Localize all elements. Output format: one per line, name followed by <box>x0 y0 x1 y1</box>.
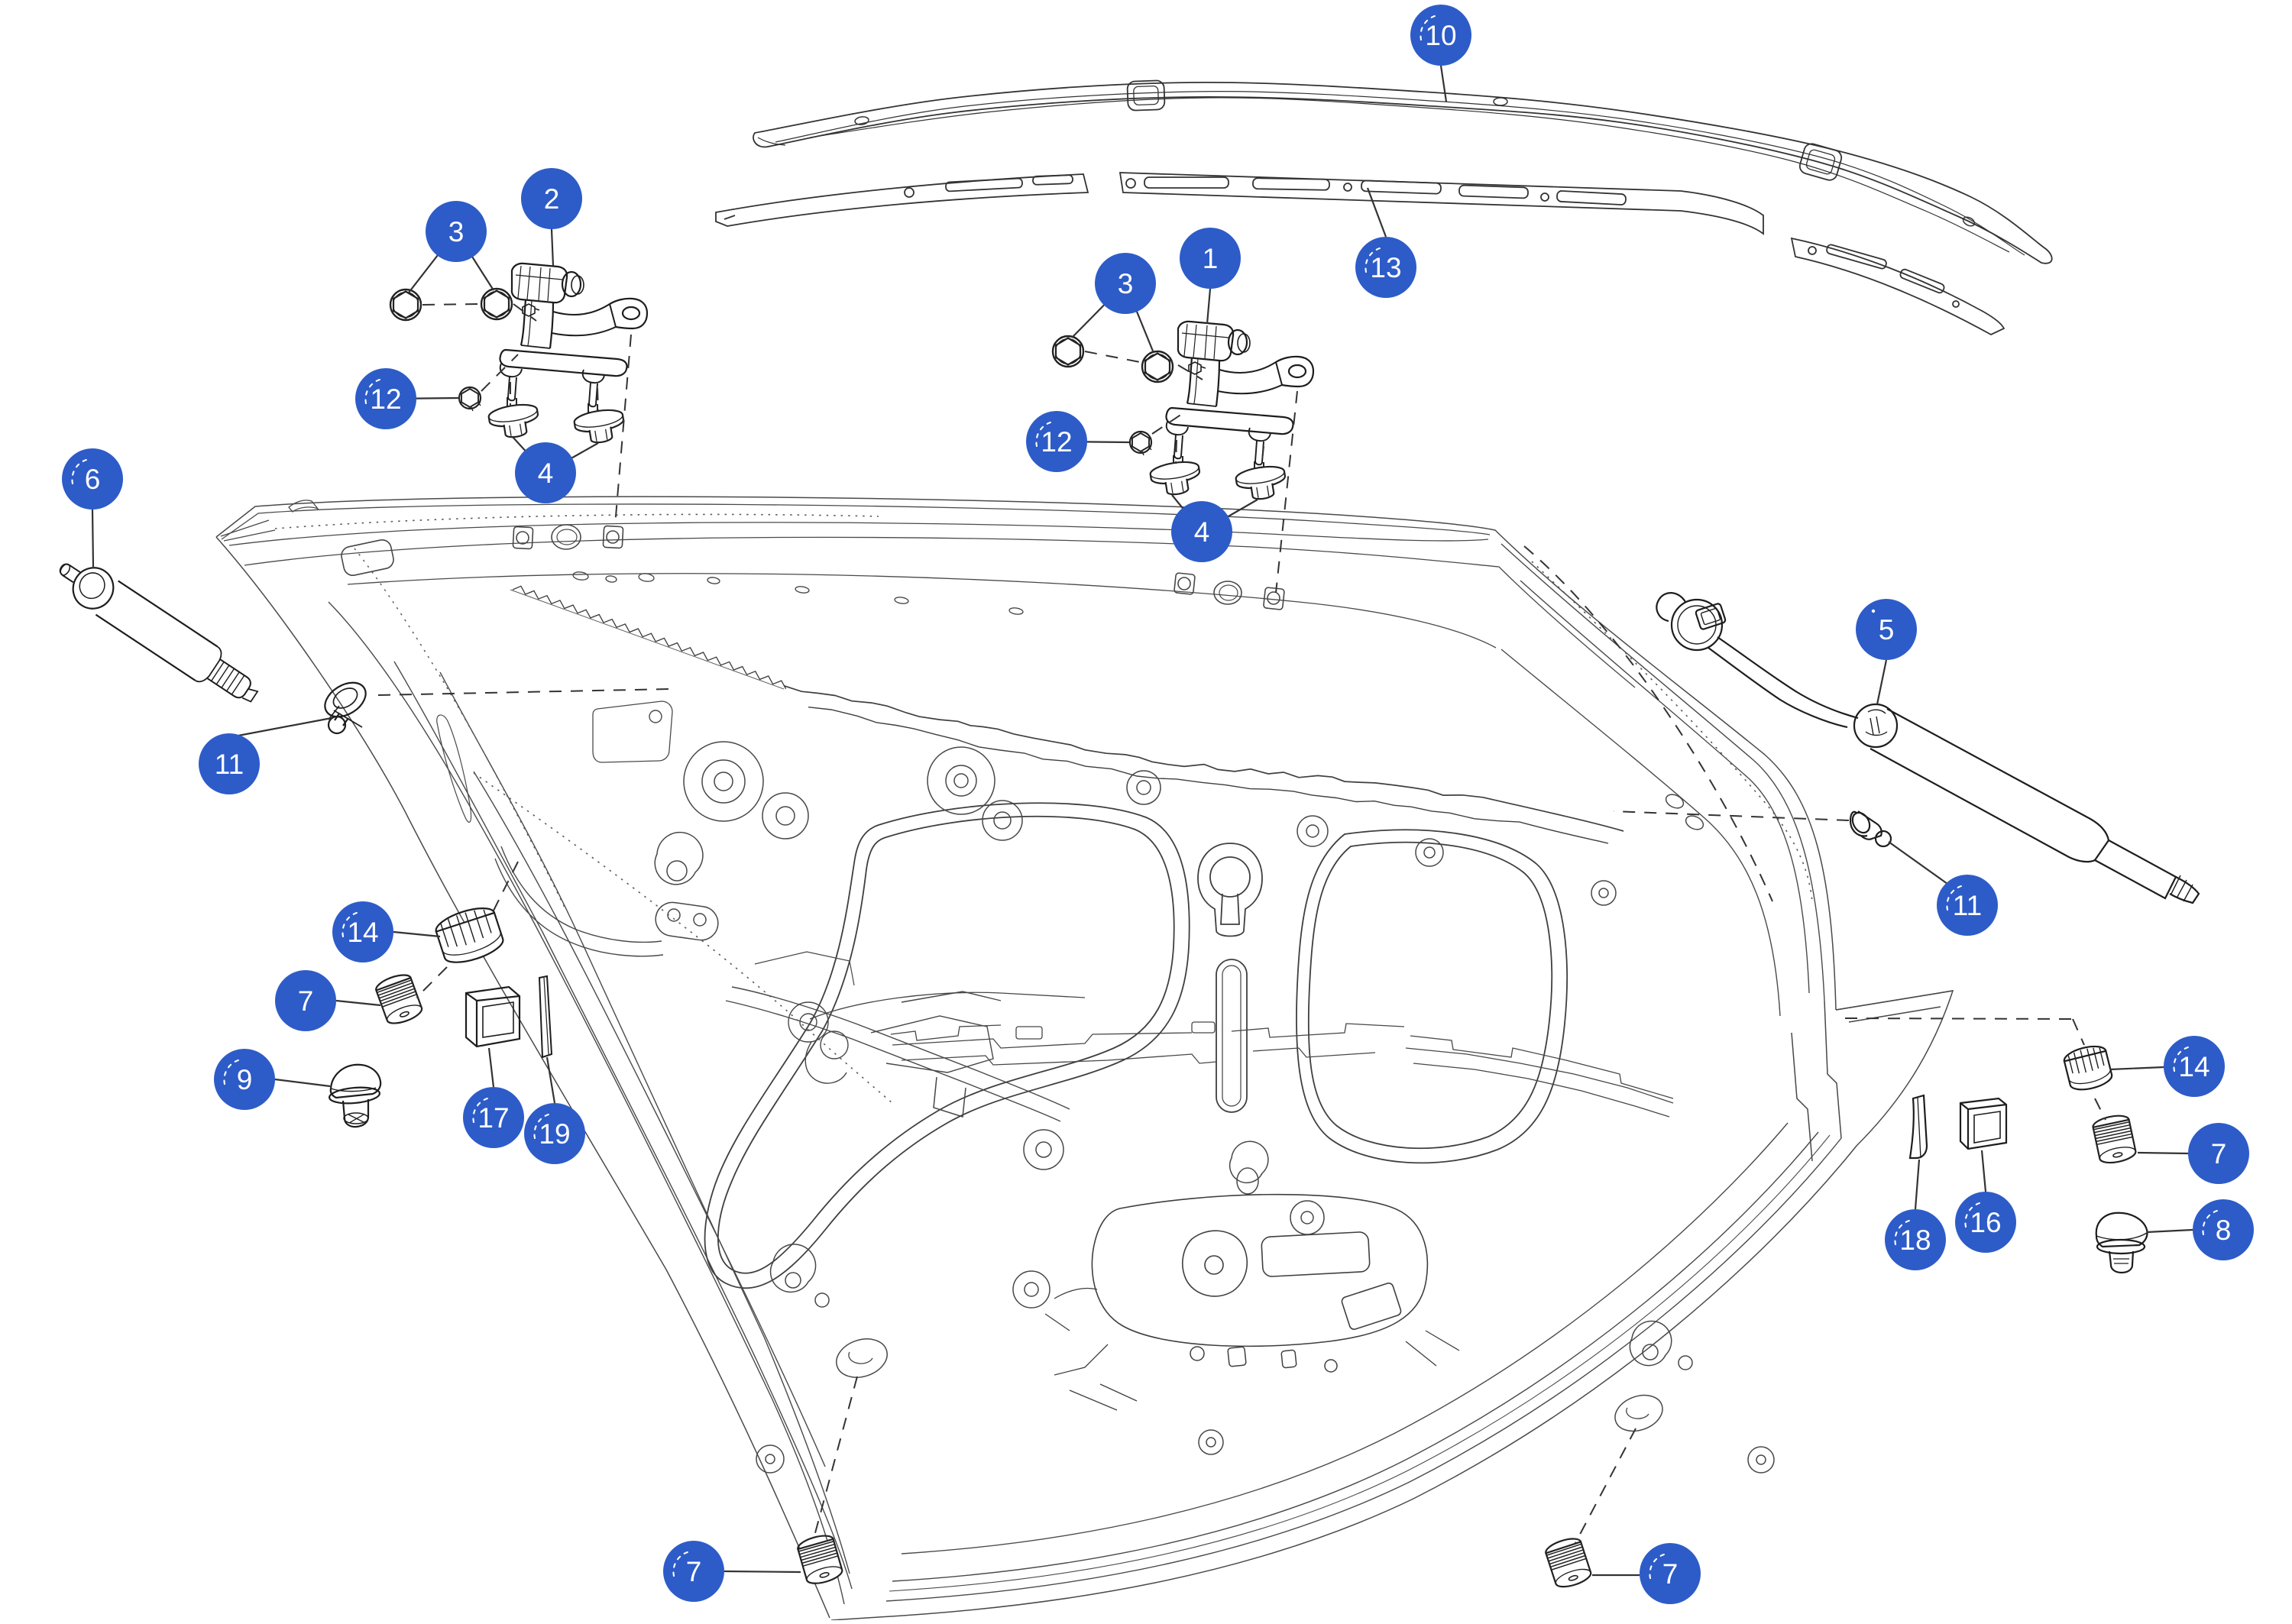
svg-text:4: 4 <box>1194 516 1210 548</box>
svg-text:19: 19 <box>539 1118 570 1150</box>
svg-text:8: 8 <box>2216 1215 2232 1246</box>
svg-text:12: 12 <box>1041 426 1072 458</box>
svg-text:11: 11 <box>215 749 244 780</box>
svg-text:9: 9 <box>237 1064 253 1095</box>
svg-text:13: 13 <box>1370 252 1401 283</box>
svg-text:1: 1 <box>1203 243 1219 274</box>
svg-text:7: 7 <box>2211 1138 2227 1169</box>
svg-text:2: 2 <box>544 183 560 215</box>
svg-text:7: 7 <box>298 985 314 1017</box>
svg-text:7: 7 <box>686 1556 702 1587</box>
svg-text:6: 6 <box>85 464 101 495</box>
svg-text:7: 7 <box>1662 1558 1679 1590</box>
svg-text:14: 14 <box>2178 1051 2209 1082</box>
svg-text:4: 4 <box>538 458 554 489</box>
svg-text:14: 14 <box>347 917 378 948</box>
svg-text:12: 12 <box>370 383 401 415</box>
svg-text:17: 17 <box>477 1102 509 1134</box>
svg-text:16: 16 <box>1970 1207 2001 1238</box>
svg-text:18: 18 <box>1899 1224 1931 1256</box>
svg-text:11: 11 <box>1953 890 1982 921</box>
svg-text:3: 3 <box>448 216 465 247</box>
svg-text:5: 5 <box>1879 614 1895 645</box>
svg-text:10: 10 <box>1425 20 1456 51</box>
svg-text:3: 3 <box>1118 268 1134 299</box>
